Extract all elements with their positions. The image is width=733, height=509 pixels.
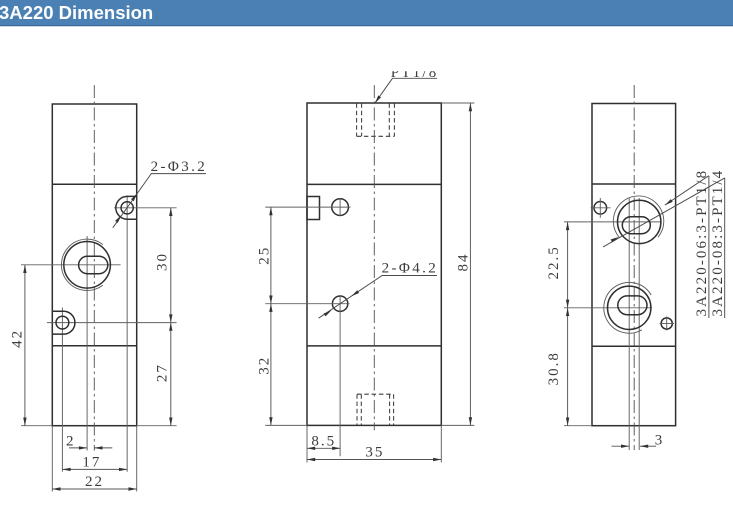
svg-text:3: 3 bbox=[655, 432, 665, 448]
svg-text:42: 42 bbox=[9, 329, 25, 348]
svg-text:3A220-06:3-PT1/8: 3A220-06:3-PT1/8 bbox=[694, 169, 710, 317]
svg-text:84: 84 bbox=[456, 253, 472, 272]
svg-text:2-Φ3.2: 2-Φ3.2 bbox=[151, 159, 208, 175]
svg-text:3A220 Dimension: 3A220 Dimension bbox=[0, 2, 153, 23]
svg-text:22.5: 22.5 bbox=[546, 245, 562, 279]
svg-text:2-Φ4.2: 2-Φ4.2 bbox=[382, 261, 439, 277]
svg-text:2: 2 bbox=[66, 433, 76, 449]
svg-text:30: 30 bbox=[155, 252, 171, 271]
svg-text:32: 32 bbox=[257, 356, 273, 375]
svg-text:30.8: 30.8 bbox=[546, 351, 562, 385]
svg-text:3A220-08:3-PT1/4: 3A220-08:3-PT1/4 bbox=[710, 169, 726, 317]
svg-text:25: 25 bbox=[257, 246, 273, 265]
svg-text:17: 17 bbox=[82, 454, 101, 470]
svg-text:22: 22 bbox=[85, 474, 104, 490]
svg-text:27: 27 bbox=[155, 363, 171, 382]
svg-text:8.5: 8.5 bbox=[311, 433, 336, 449]
svg-text:35: 35 bbox=[365, 445, 384, 461]
